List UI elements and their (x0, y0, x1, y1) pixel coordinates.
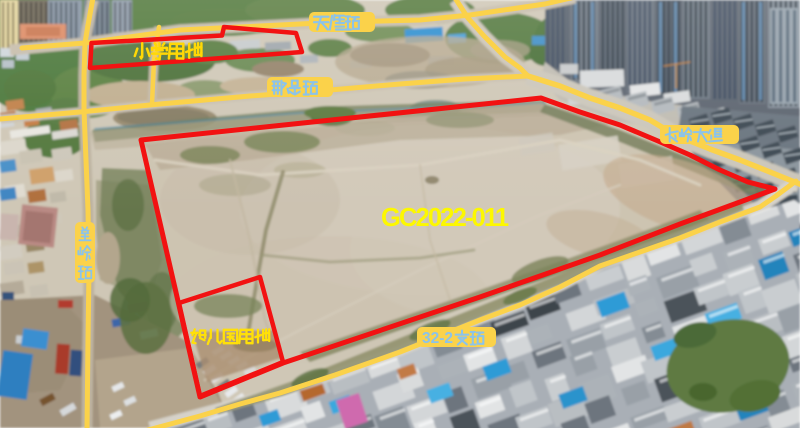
svg-text:GC2022-011: GC2022-011 (381, 204, 509, 232)
svg-text:32-2: 32-2 (422, 330, 453, 347)
